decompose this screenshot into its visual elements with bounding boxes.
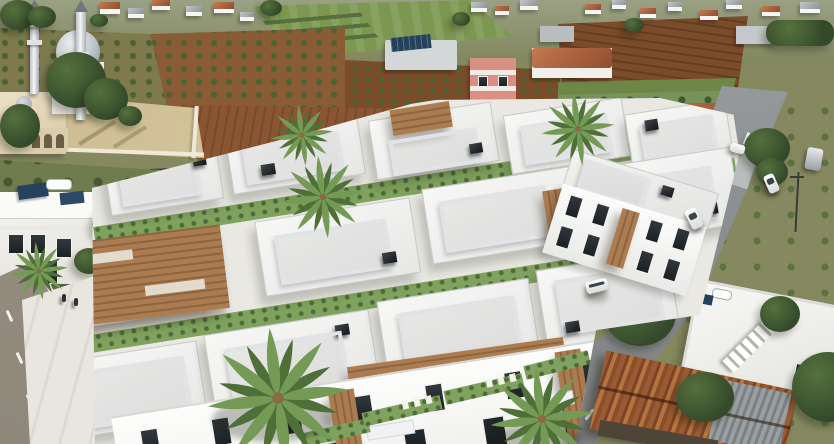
solar-roof-house [385,40,457,70]
pergola-frame [438,185,553,253]
village-house [640,8,656,18]
balcony-band [470,86,516,91]
village-house [800,2,820,13]
tree [90,14,108,27]
balcony-band [470,70,516,75]
gray-roof [128,8,144,14]
window [478,76,488,87]
terracotta-roof [640,8,656,14]
tree [624,18,644,32]
solar-panel-array [390,34,431,52]
minaret-balcony [27,40,42,45]
tree [118,106,142,126]
terracotta-roof [214,2,234,9]
window [644,219,664,244]
car-windshield [766,177,775,185]
palm-tree [539,90,617,168]
palm-tree [487,364,597,444]
terracotta-roof [700,10,718,16]
rooftop-ac-unit [382,251,398,264]
aerial-render-scene [0,0,834,444]
balcony-rail [0,226,96,230]
window [662,257,682,282]
arch [44,134,52,148]
window [564,194,584,219]
terracotta-roof [495,6,509,11]
arch [56,134,64,148]
tree [260,0,282,16]
palm-tree [269,102,335,168]
salmon-house [470,58,516,103]
pole-crossarm [790,176,804,178]
warehouse [540,26,574,42]
village-house [128,8,144,18]
window [635,249,655,274]
gray-roof [612,0,626,5]
village-house [726,0,742,9]
solar-panel [59,191,84,205]
pergola-frame [117,157,202,207]
rooftop-ac-unit [644,119,659,132]
village-house [240,12,254,21]
window [591,202,611,227]
tree [676,372,734,422]
village-house [186,6,202,16]
tree [28,6,56,28]
car-windshield [589,281,605,288]
gray-roof [668,2,682,7]
hipped-roof [532,48,612,68]
village-house [152,0,170,10]
window [555,225,575,250]
gray-roof [471,2,487,8]
pergola-slot [145,279,206,296]
palm-tree [8,240,70,302]
pedestrian [74,298,78,306]
palm-tree [203,323,353,444]
gray-roof [800,2,820,9]
rooftop-ac-unit [469,142,483,154]
hedge-row [766,20,834,46]
terracotta-roof [152,0,170,6]
village-house [762,6,780,16]
window [140,428,162,444]
terracotta-roof [762,6,780,12]
village-house [520,0,538,10]
tree [0,104,40,148]
village-house [668,2,682,11]
village-house [100,2,120,14]
car-windshield [688,211,698,220]
village-house [700,10,718,20]
village-house [612,0,626,9]
village-house [585,4,601,14]
terracotta-villa [532,48,612,78]
gray-roof [520,0,538,6]
water-heater-cylinder [46,179,72,190]
gray-roof [186,6,202,12]
gray-roof [726,0,742,5]
tree [760,296,800,332]
tree [452,12,470,26]
window [581,233,601,258]
terracotta-roof [585,4,601,10]
gray-roof [240,12,254,17]
rooftop-ac-unit [565,320,581,333]
village-house [495,6,509,15]
window [498,76,508,87]
village-house [471,2,487,12]
wood-facade-panel [606,208,640,269]
terracotta-roof [100,2,120,9]
village-house [214,2,234,13]
